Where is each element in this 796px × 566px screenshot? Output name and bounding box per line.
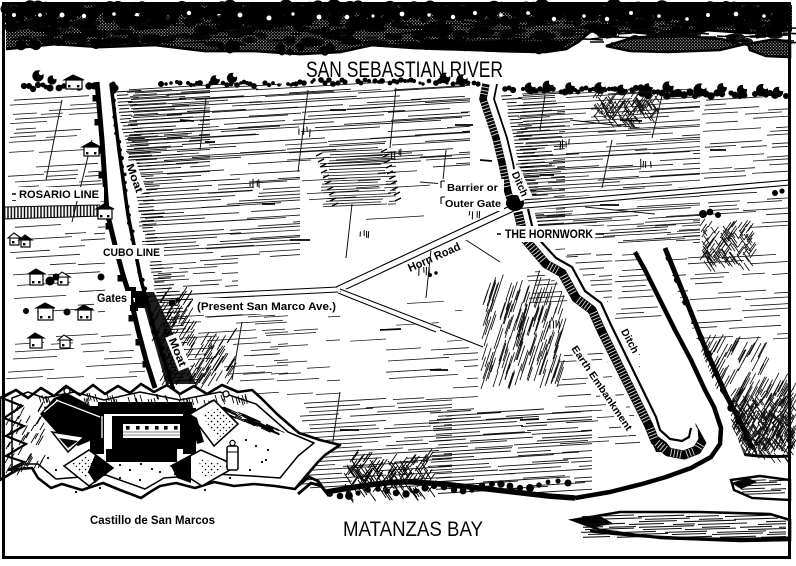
svg-text:(Present San Marco Ave.): (Present San Marco Ave.) [197,301,336,313]
svg-text:Castillo de San Marcos: Castillo de San Marcos [90,513,215,527]
svg-text:ROSARIO LINE: ROSARIO LINE [19,189,99,201]
svg-text:Barrier or: Barrier or [447,182,498,194]
svg-text:Gates: Gates [97,293,127,305]
svg-text:THE HORNWORK: THE HORNWORK [505,229,594,241]
svg-text:MATANZAS BAY: MATANZAS BAY [343,517,483,541]
svg-text:CUBO LINE: CUBO LINE [103,247,160,259]
svg-text:SAN SEBASTIAN RIVER: SAN SEBASTIAN RIVER [306,57,503,82]
svg-text:Outer Gate: Outer Gate [445,198,501,210]
